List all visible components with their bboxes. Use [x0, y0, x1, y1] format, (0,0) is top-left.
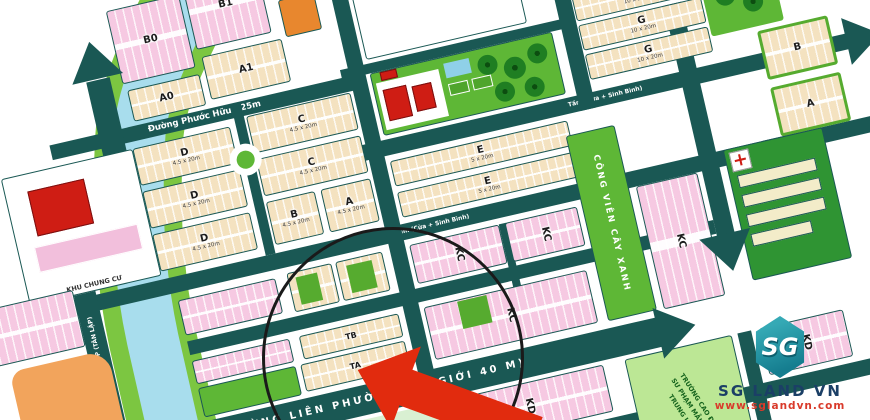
block-label-cong-vien-cay-xanh: CÔNG VIÊN CÂY XANH [591, 153, 632, 292]
block-size-d1: 4.5 x 20m [172, 155, 201, 167]
block-label-kc-right: KC [674, 233, 687, 250]
block-size-g2: 10 x 20m [630, 23, 657, 35]
block-label-b1: B1 [217, 0, 233, 11]
watermark-logo: SG SG LAND VN www.sglandvn.com [700, 316, 860, 412]
block-label-a1: A1 [238, 63, 255, 76]
subdivision-map: Đường Phước Hữu - 25mTầm (Cừa + Sinh Bìn… [0, 0, 870, 420]
block-size-e2: 5 x 20m [478, 184, 501, 195]
block-size-a2: 4.5 x 20m [337, 204, 366, 216]
block-size-c2: 4.5 x 20m [299, 165, 328, 177]
block-label-kc-b: KC [539, 226, 552, 243]
block-size-e1: 5 x 20m [471, 153, 494, 164]
roundabout-center [232, 146, 258, 172]
logo-title: SG LAND VN [700, 382, 860, 400]
block-label-b0: B0 [142, 33, 158, 46]
block-size-g3: 10 x 20m [637, 52, 664, 64]
block-label-b3: B [793, 42, 803, 53]
block-size-g1: 10 x 20m [623, 0, 650, 6]
logo-website: www.sglandvn.com [700, 400, 860, 412]
cross-glyph: + [731, 150, 750, 171]
block-size-d2: 4.5 x 20m [182, 198, 211, 210]
logo-hexagon-icon: SG [752, 316, 808, 378]
logo-monogram: SG [762, 333, 799, 361]
block-label-a3: A [806, 98, 816, 109]
block-size-d3: 4.5 x 20m [192, 241, 221, 253]
block-size-b2: 4.5 x 20m [282, 217, 311, 229]
block-size-c1: 4.5 x 20m [289, 122, 318, 134]
block-label-a0: A0 [158, 91, 175, 104]
